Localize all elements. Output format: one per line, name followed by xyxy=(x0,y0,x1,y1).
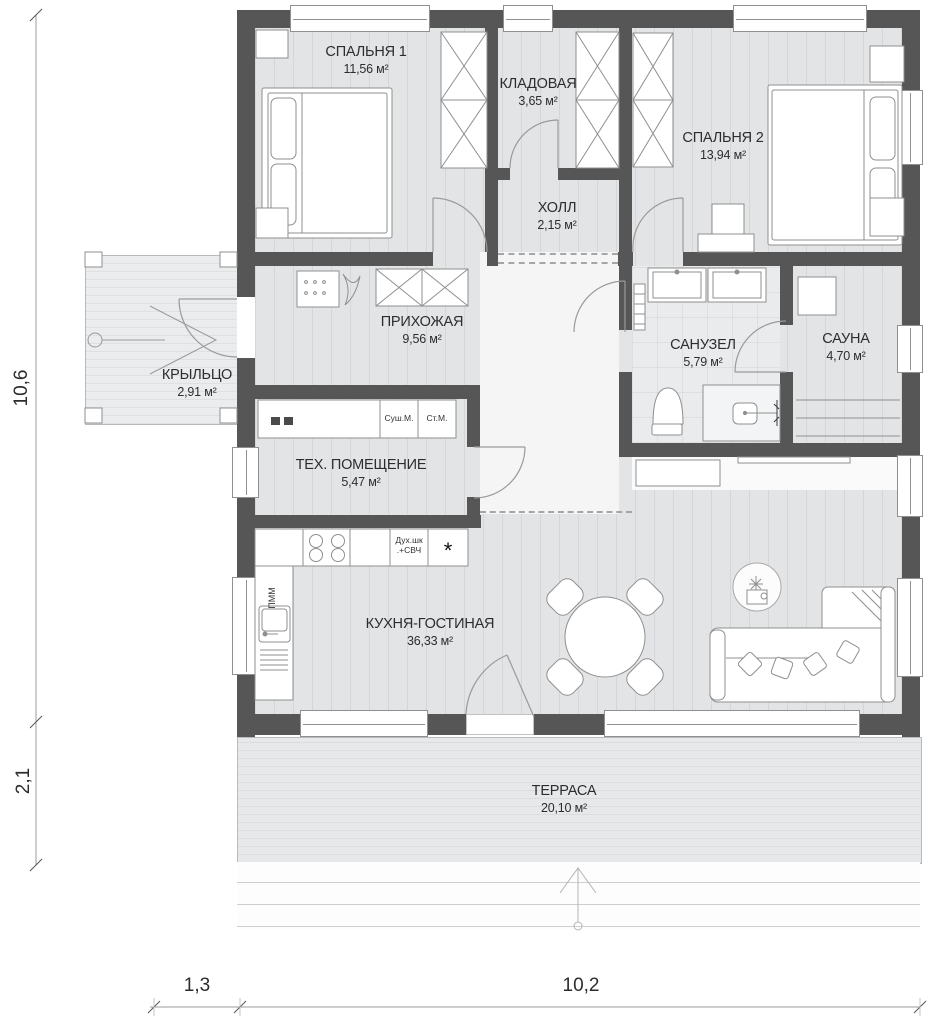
room-area: 36,33 м² xyxy=(366,634,495,648)
dim-porch-width: 1,3 xyxy=(184,975,210,997)
wardrobe xyxy=(633,33,673,167)
door-arc xyxy=(474,447,525,498)
room-area: 11,56 м² xyxy=(325,62,406,76)
kitchen-sink-column xyxy=(255,566,293,700)
room-name: САНУЗЕЛ xyxy=(670,337,736,353)
dining-table xyxy=(565,597,645,677)
dryer-label: Суш.М. xyxy=(384,414,413,423)
room-label-entry: ПРИХОЖАЯ 9,56 м² xyxy=(381,314,464,346)
dim-height-total: 10,6 xyxy=(11,370,33,407)
room-label-tech: ТЕХ. ПОМЕЩЕНИЕ 5,47 м² xyxy=(296,457,427,489)
room-name: СПАЛЬНЯ 2 xyxy=(682,130,763,146)
door-arc xyxy=(466,655,534,717)
nightstand xyxy=(870,198,904,236)
furniture-layer xyxy=(0,0,937,1024)
door-arc xyxy=(735,321,786,372)
door-arc xyxy=(433,198,487,252)
dishwasher-label: ПММ xyxy=(267,587,277,608)
room-area: 2,15 м² xyxy=(537,218,576,232)
room-area: 3,65 м² xyxy=(500,94,577,108)
room-label-bathroom: САНУЗЕЛ 5,79 м² xyxy=(670,337,736,369)
sauna-benches xyxy=(796,400,900,436)
dim-terrace-depth: 2,1 xyxy=(13,768,35,794)
coat-hanger xyxy=(343,274,360,305)
nightstand xyxy=(256,208,288,238)
nightstand xyxy=(256,30,288,58)
room-name: ХОЛЛ xyxy=(537,200,576,216)
room-area: 5,47 м² xyxy=(296,475,427,489)
toilet xyxy=(652,388,683,435)
room-label-kitchen: КУХНЯ-ГОСТИНАЯ 36,33 м² xyxy=(366,616,495,648)
room-label-terrace: ТЕРРАСА 20,10 м² xyxy=(532,783,597,815)
oven-label-line2: .+СВЧ xyxy=(397,546,421,555)
bathroom-sinks xyxy=(648,268,766,302)
door-arc xyxy=(574,281,625,332)
room-label-storage: КЛАДОВАЯ 3,65 м² xyxy=(500,76,577,108)
kitchen-counter xyxy=(255,529,468,566)
wardrobe xyxy=(441,32,487,168)
door-arc xyxy=(633,198,683,252)
room-area: 2,91 м² xyxy=(162,385,232,399)
oven-label-line1: Дух.шк xyxy=(395,536,422,545)
room-area: 20,10 м² xyxy=(532,801,597,815)
room-name: КЛАДОВАЯ xyxy=(500,76,577,92)
room-area: 5,79 м² xyxy=(670,355,736,369)
wardrobe xyxy=(576,32,619,168)
tv-console xyxy=(636,457,850,486)
room-name: КРЫЛЬЦО xyxy=(162,367,232,383)
room-name: КУХНЯ-ГОСТИНАЯ xyxy=(366,616,495,632)
shower xyxy=(703,385,780,441)
floor-plan: СПАЛЬНЯ 1 11,56 м² КЛАДОВАЯ 3,65 м² СПАЛ… xyxy=(0,0,937,1024)
plant-rug xyxy=(733,563,781,611)
sofa xyxy=(710,587,895,702)
room-label-hall: ХОЛЛ 2,15 м² xyxy=(537,200,576,232)
door-arc xyxy=(179,299,237,357)
fridge-mark: * xyxy=(444,538,453,564)
wardrobe xyxy=(376,269,468,306)
room-area: 13,94 м² xyxy=(682,148,763,162)
towel-radiator xyxy=(634,284,645,330)
room-area: 4,70 м² xyxy=(822,349,870,363)
room-label-porch: КРЫЛЬЦО 2,91 м² xyxy=(162,367,232,399)
room-label-bedroom1: СПАЛЬНЯ 1 11,56 м² xyxy=(325,44,406,76)
steps-arrow xyxy=(560,868,596,930)
room-name: ТЕХ. ПОМЕЩЕНИЕ xyxy=(296,457,427,473)
washer-label: Ст.М. xyxy=(427,414,448,423)
nightstand xyxy=(870,46,904,82)
bench xyxy=(297,271,339,307)
room-name: ТЕРРАСА xyxy=(532,783,597,799)
room-name: СПАЛЬНЯ 1 xyxy=(325,44,406,60)
dim-width-total: 10,2 xyxy=(563,975,600,997)
door-arc xyxy=(510,120,558,168)
room-label-bedroom2: СПАЛЬНЯ 2 13,94 м² xyxy=(682,130,763,162)
room-area: 9,56 м² xyxy=(381,332,464,346)
dresser xyxy=(698,204,754,252)
room-label-sauna: САУНА 4,70 м² xyxy=(822,331,870,363)
room-name: САУНА xyxy=(822,331,870,347)
sauna-heater xyxy=(798,277,836,315)
room-name: ПРИХОЖАЯ xyxy=(381,314,464,330)
